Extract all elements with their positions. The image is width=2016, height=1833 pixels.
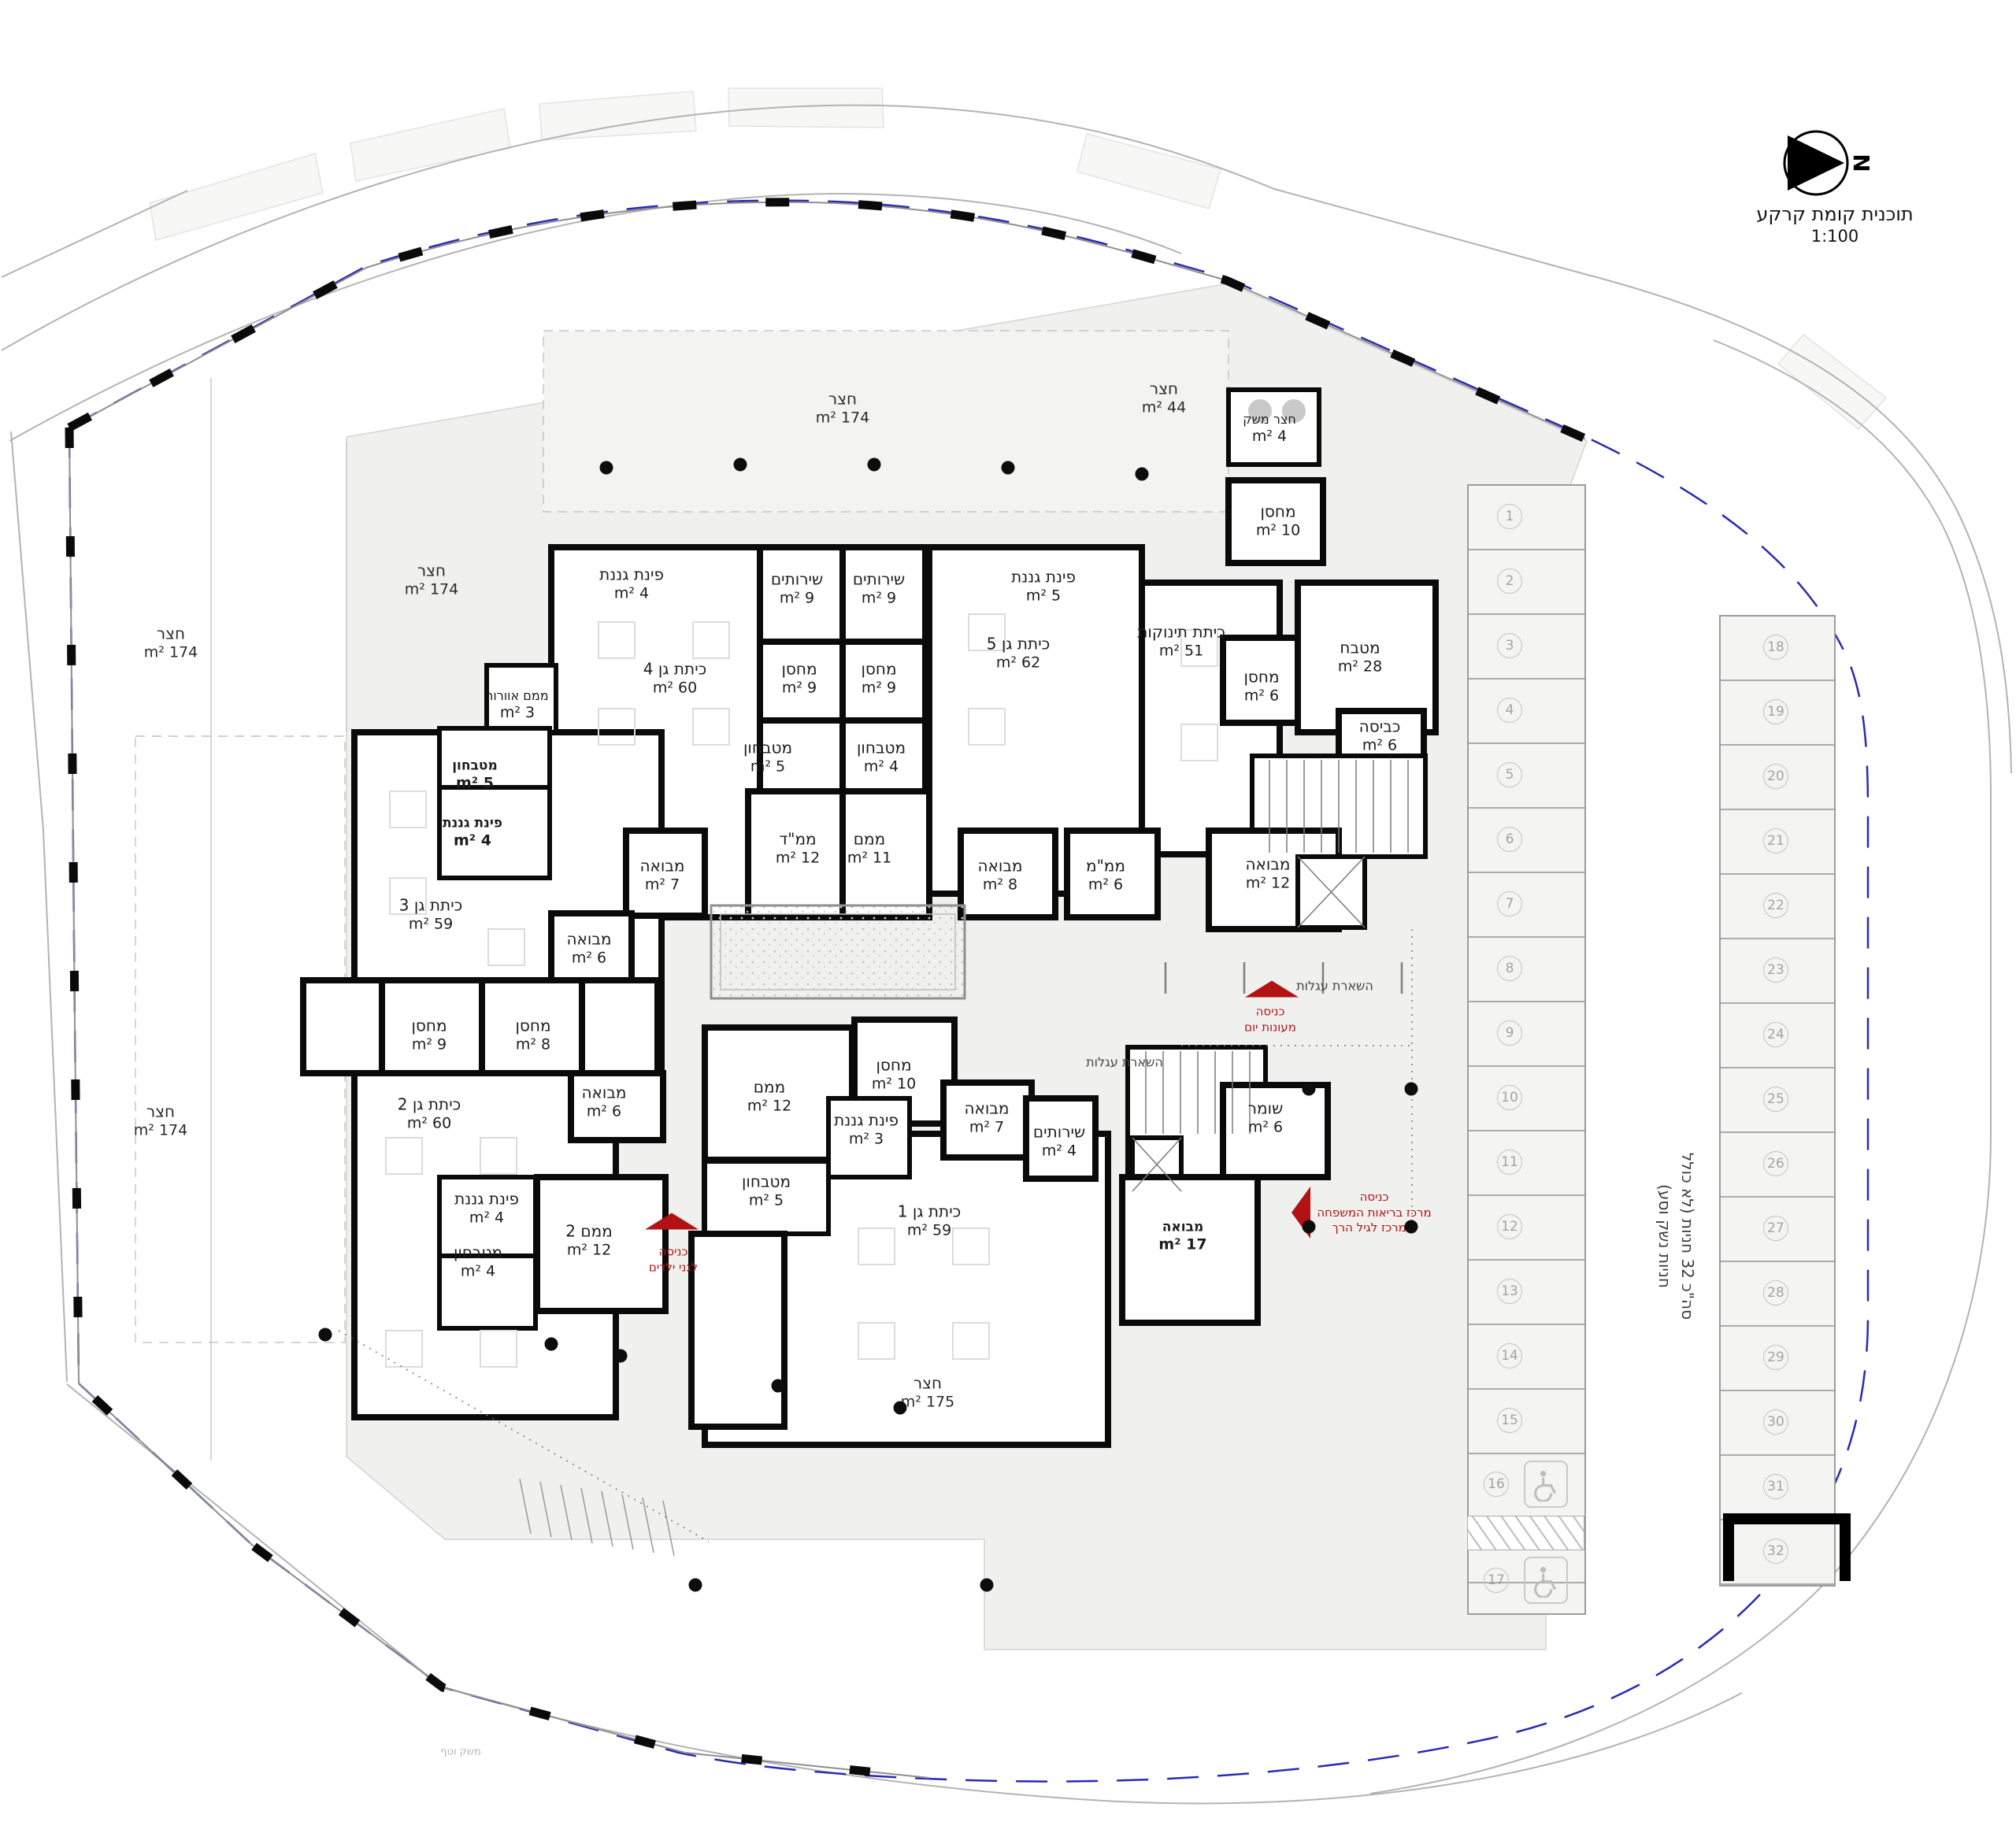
wc-gan4-b: שירותים9 m²: [853, 570, 905, 609]
parking-stall-number: 9: [1497, 1020, 1522, 1046]
column-dot: [689, 1579, 702, 1592]
yard-44: חצר44 m²: [1142, 380, 1186, 418]
lobby-6-mid: מבואה6 m²: [566, 930, 611, 968]
parking-stall-number: 24: [1763, 1022, 1788, 1047]
mamam-12-s: ממם12 m²: [747, 1078, 791, 1116]
wheelchair-icon: [1524, 1461, 1568, 1508]
gan-2: כיתת גן 260 m²: [398, 1095, 461, 1134]
parking-stall-number: 2: [1497, 568, 1522, 594]
road-label: משק וטף: [440, 1746, 481, 1758]
mamad-12-n: ממ"ד12 m²: [776, 830, 820, 868]
pinat-gannenet-5: פינת גננת5 m²: [1011, 568, 1076, 606]
storage-10-s: מחסן10 m²: [872, 1056, 916, 1094]
column-dot: [1405, 1220, 1418, 1234]
parking-stall-number: 7: [1497, 891, 1522, 916]
entrance-daycare-label: כניסהמעונות יום: [1244, 1005, 1296, 1035]
lobby-12: מבואה12 m²: [1245, 855, 1290, 894]
stroller-note-b: השארת עגלות: [1086, 1055, 1163, 1070]
column-dot: [614, 1350, 628, 1363]
parking-stall-number: 18: [1763, 635, 1788, 660]
storage-9-a: מחסן9 m²: [781, 660, 817, 698]
parking-stall-number: 23: [1763, 957, 1788, 983]
shomer: שומר6 m²: [1248, 1099, 1284, 1138]
column-dot: [600, 461, 613, 475]
column-dot: [1002, 461, 1015, 475]
mamam-6: ממ"מ6 m²: [1086, 857, 1125, 895]
parking-total-note: סה"כ 32 חניות (לא כולל חניות נשק וסע): [1653, 1153, 1699, 1320]
column-dot: [772, 1379, 785, 1393]
parking-stall-number: 27: [1763, 1216, 1788, 1241]
parking-stall-number: 11: [1497, 1150, 1522, 1175]
storage-8: מחסן8 m²: [515, 1016, 550, 1055]
central-pool: [711, 905, 965, 998]
kitchenette-5-n: מטבחון5 m²: [743, 739, 792, 777]
parking-stall-number: 10: [1497, 1085, 1522, 1110]
gan-4: כיתת גן 460 m²: [643, 660, 706, 698]
parking-stall-number: 12: [1497, 1214, 1522, 1239]
parking-stall-number: 22: [1763, 893, 1788, 918]
kitchenette-4-sw: מטבחון4 m²: [454, 1243, 502, 1282]
lobby-6-sw: מבואה6 m²: [581, 1083, 626, 1122]
parking-stall-number: 32: [1763, 1539, 1788, 1564]
gan-3: כיתת גן 359 m²: [399, 896, 462, 935]
wc-gan4-a: שירותים9 m²: [771, 570, 823, 609]
parking-stall-number: 13: [1497, 1279, 1522, 1304]
parking-stall-number: 6: [1497, 827, 1522, 852]
column-dot: [868, 458, 881, 472]
column-dot: [1303, 1220, 1316, 1234]
plan-drawing: [0, 0, 2016, 1833]
parking-stall-number: 30: [1763, 1409, 1788, 1435]
column-dot: [1303, 1083, 1316, 1096]
yard-174-c: חצר174 m²: [816, 390, 869, 428]
parking-stall-number: 4: [1497, 698, 1522, 723]
wheelchair-icon: [1524, 1557, 1568, 1604]
storage-9-w: מחסן9 m²: [411, 1016, 447, 1055]
parking-stall-number: 1: [1497, 504, 1522, 529]
storage-10-ne: מחסן10 m²: [1256, 502, 1300, 541]
parking-stall-number: 8: [1497, 956, 1522, 981]
lobby-7-s: מבואה7 m²: [964, 1099, 1009, 1138]
parking-stall-number: 15: [1497, 1408, 1522, 1433]
parking-stall-number: 14: [1497, 1343, 1522, 1368]
yard-175: חצר175 m²: [901, 1374, 954, 1413]
entrance-daycare-arrow-icon: [1245, 981, 1299, 998]
column-dot: [980, 1579, 994, 1592]
north-terrace: [543, 331, 1228, 512]
stroller-note-a: השארת עגלות: [1296, 979, 1373, 994]
parking-stall-number: 21: [1763, 828, 1788, 854]
wc-4-s: שירותים4 m²: [1033, 1123, 1085, 1161]
entrance-kindergartens-label: כניסהלגני ילדים: [649, 1245, 698, 1276]
parking-stall-number: 25: [1763, 1087, 1788, 1112]
kitchen-28: מטבח28 m²: [1338, 639, 1382, 677]
parking-stall-number: 17: [1484, 1568, 1509, 1593]
plan-title: תוכנית קומת קרקע 1:100: [1717, 203, 1953, 246]
floor-plan-canvas: N תוכנית קומת קרקע 1:100 סה"כ 32 חניות (…: [0, 0, 2016, 1833]
plan-title-text: תוכנית קומת קרקע: [1717, 203, 1953, 225]
kitat-tinokot: כיתת תינוקות51 m²: [1137, 623, 1225, 661]
yard-fences: [135, 378, 346, 1461]
storage-9-b: מחסן9 m²: [861, 660, 896, 698]
parking-stall-number: 20: [1763, 764, 1788, 789]
column-dot: [894, 1402, 907, 1415]
parking-stall-number: 19: [1763, 699, 1788, 724]
kitchenette-5-s: מטבחון5 m²: [742, 1172, 791, 1211]
pinat-gannenet-4: פינת גננת4 m²: [599, 565, 664, 604]
parking-stall-number: 29: [1763, 1345, 1788, 1370]
kitchenette-4-n: מטבחון4 m²: [857, 739, 906, 777]
plan-scale: 1:100: [1717, 227, 1953, 246]
gan-5: כיתת גן 562 m²: [987, 635, 1050, 673]
parking-stall-number: 28: [1763, 1280, 1788, 1305]
yard-174-b: חצר174 m²: [405, 561, 458, 600]
parking-stall-number: 3: [1497, 633, 1522, 658]
north-arrow-icon: N: [1762, 126, 1881, 201]
gan-1: כיתת גן 159 m²: [898, 1202, 961, 1241]
parking-stall-number: 26: [1763, 1151, 1788, 1176]
parking-hatch-zone: [1467, 1516, 1584, 1550]
column-dot: [734, 458, 747, 472]
parking-stall-number: 31: [1763, 1474, 1788, 1499]
yard-meshek: חצר משק4 m²: [1243, 412, 1296, 446]
mamam-11: ממם11 m²: [847, 830, 891, 868]
column-dot: [1405, 1083, 1418, 1096]
parking-stall-number: 16: [1484, 1472, 1509, 1497]
parking-stall-number: 5: [1497, 762, 1522, 787]
pinat-gannenet-4-sw: פינת גננת4 m²: [454, 1190, 519, 1228]
lobby-17: מבואה17 m²: [1158, 1220, 1206, 1255]
lobby-8: מבואה8 m²: [977, 857, 1022, 895]
lobby-7-mid: מבואה7 m²: [639, 857, 684, 895]
column-dot: [545, 1338, 558, 1351]
yard-174-a: חצר174 m²: [144, 624, 198, 663]
entrance-kindergartens-arrow-icon: [645, 1213, 699, 1230]
yard-174-d: חצר174 m²: [134, 1102, 187, 1141]
kitchenette-5-bold: מטבחון5 m²: [452, 758, 498, 794]
svg-text:N: N: [1848, 154, 1874, 172]
mamam-vent: ממם אוורור3 m²: [486, 688, 548, 723]
pinat-gannenet-3: פינת גננת3 m²: [834, 1111, 899, 1150]
parking-column-left: [1467, 484, 1586, 1615]
column-dot: [319, 1328, 332, 1342]
column-dot: [1136, 468, 1149, 481]
pinat-gannenet-4-bold: פינת גננת4 m²: [443, 816, 502, 851]
laundry-6: כביסה6 m²: [1359, 717, 1401, 756]
mamam-2: ממם 212 m²: [565, 1222, 613, 1261]
storage-6: מחסן6 m²: [1243, 668, 1279, 706]
